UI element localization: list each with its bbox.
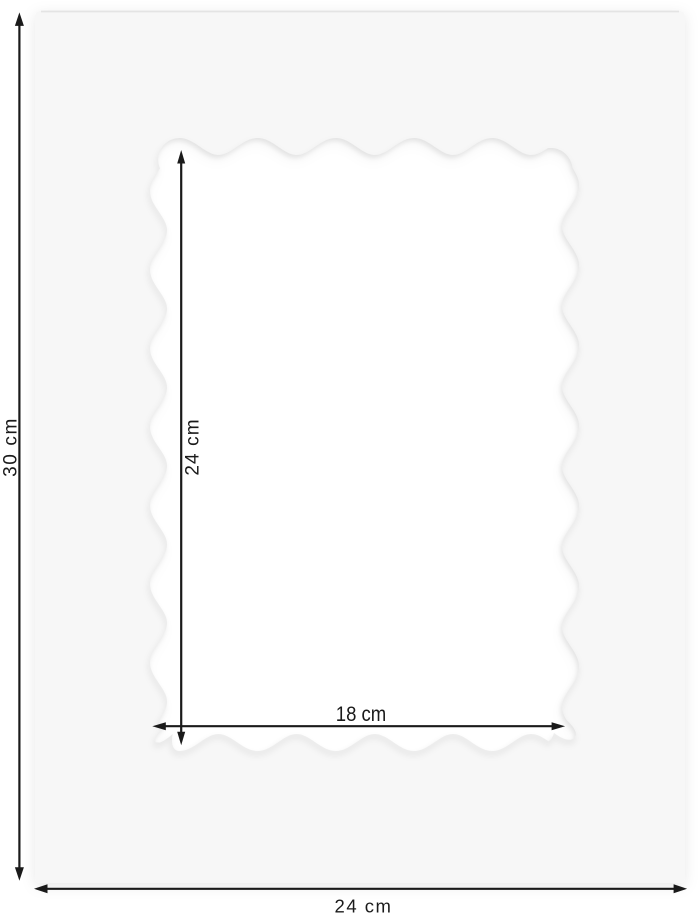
svg-text:30 cm: 30 cm bbox=[1, 417, 22, 477]
svg-text:24 cm: 24 cm bbox=[335, 895, 393, 916]
svg-text:24 cm: 24 cm bbox=[183, 418, 204, 475]
svg-text:18 cm: 18 cm bbox=[336, 703, 387, 726]
